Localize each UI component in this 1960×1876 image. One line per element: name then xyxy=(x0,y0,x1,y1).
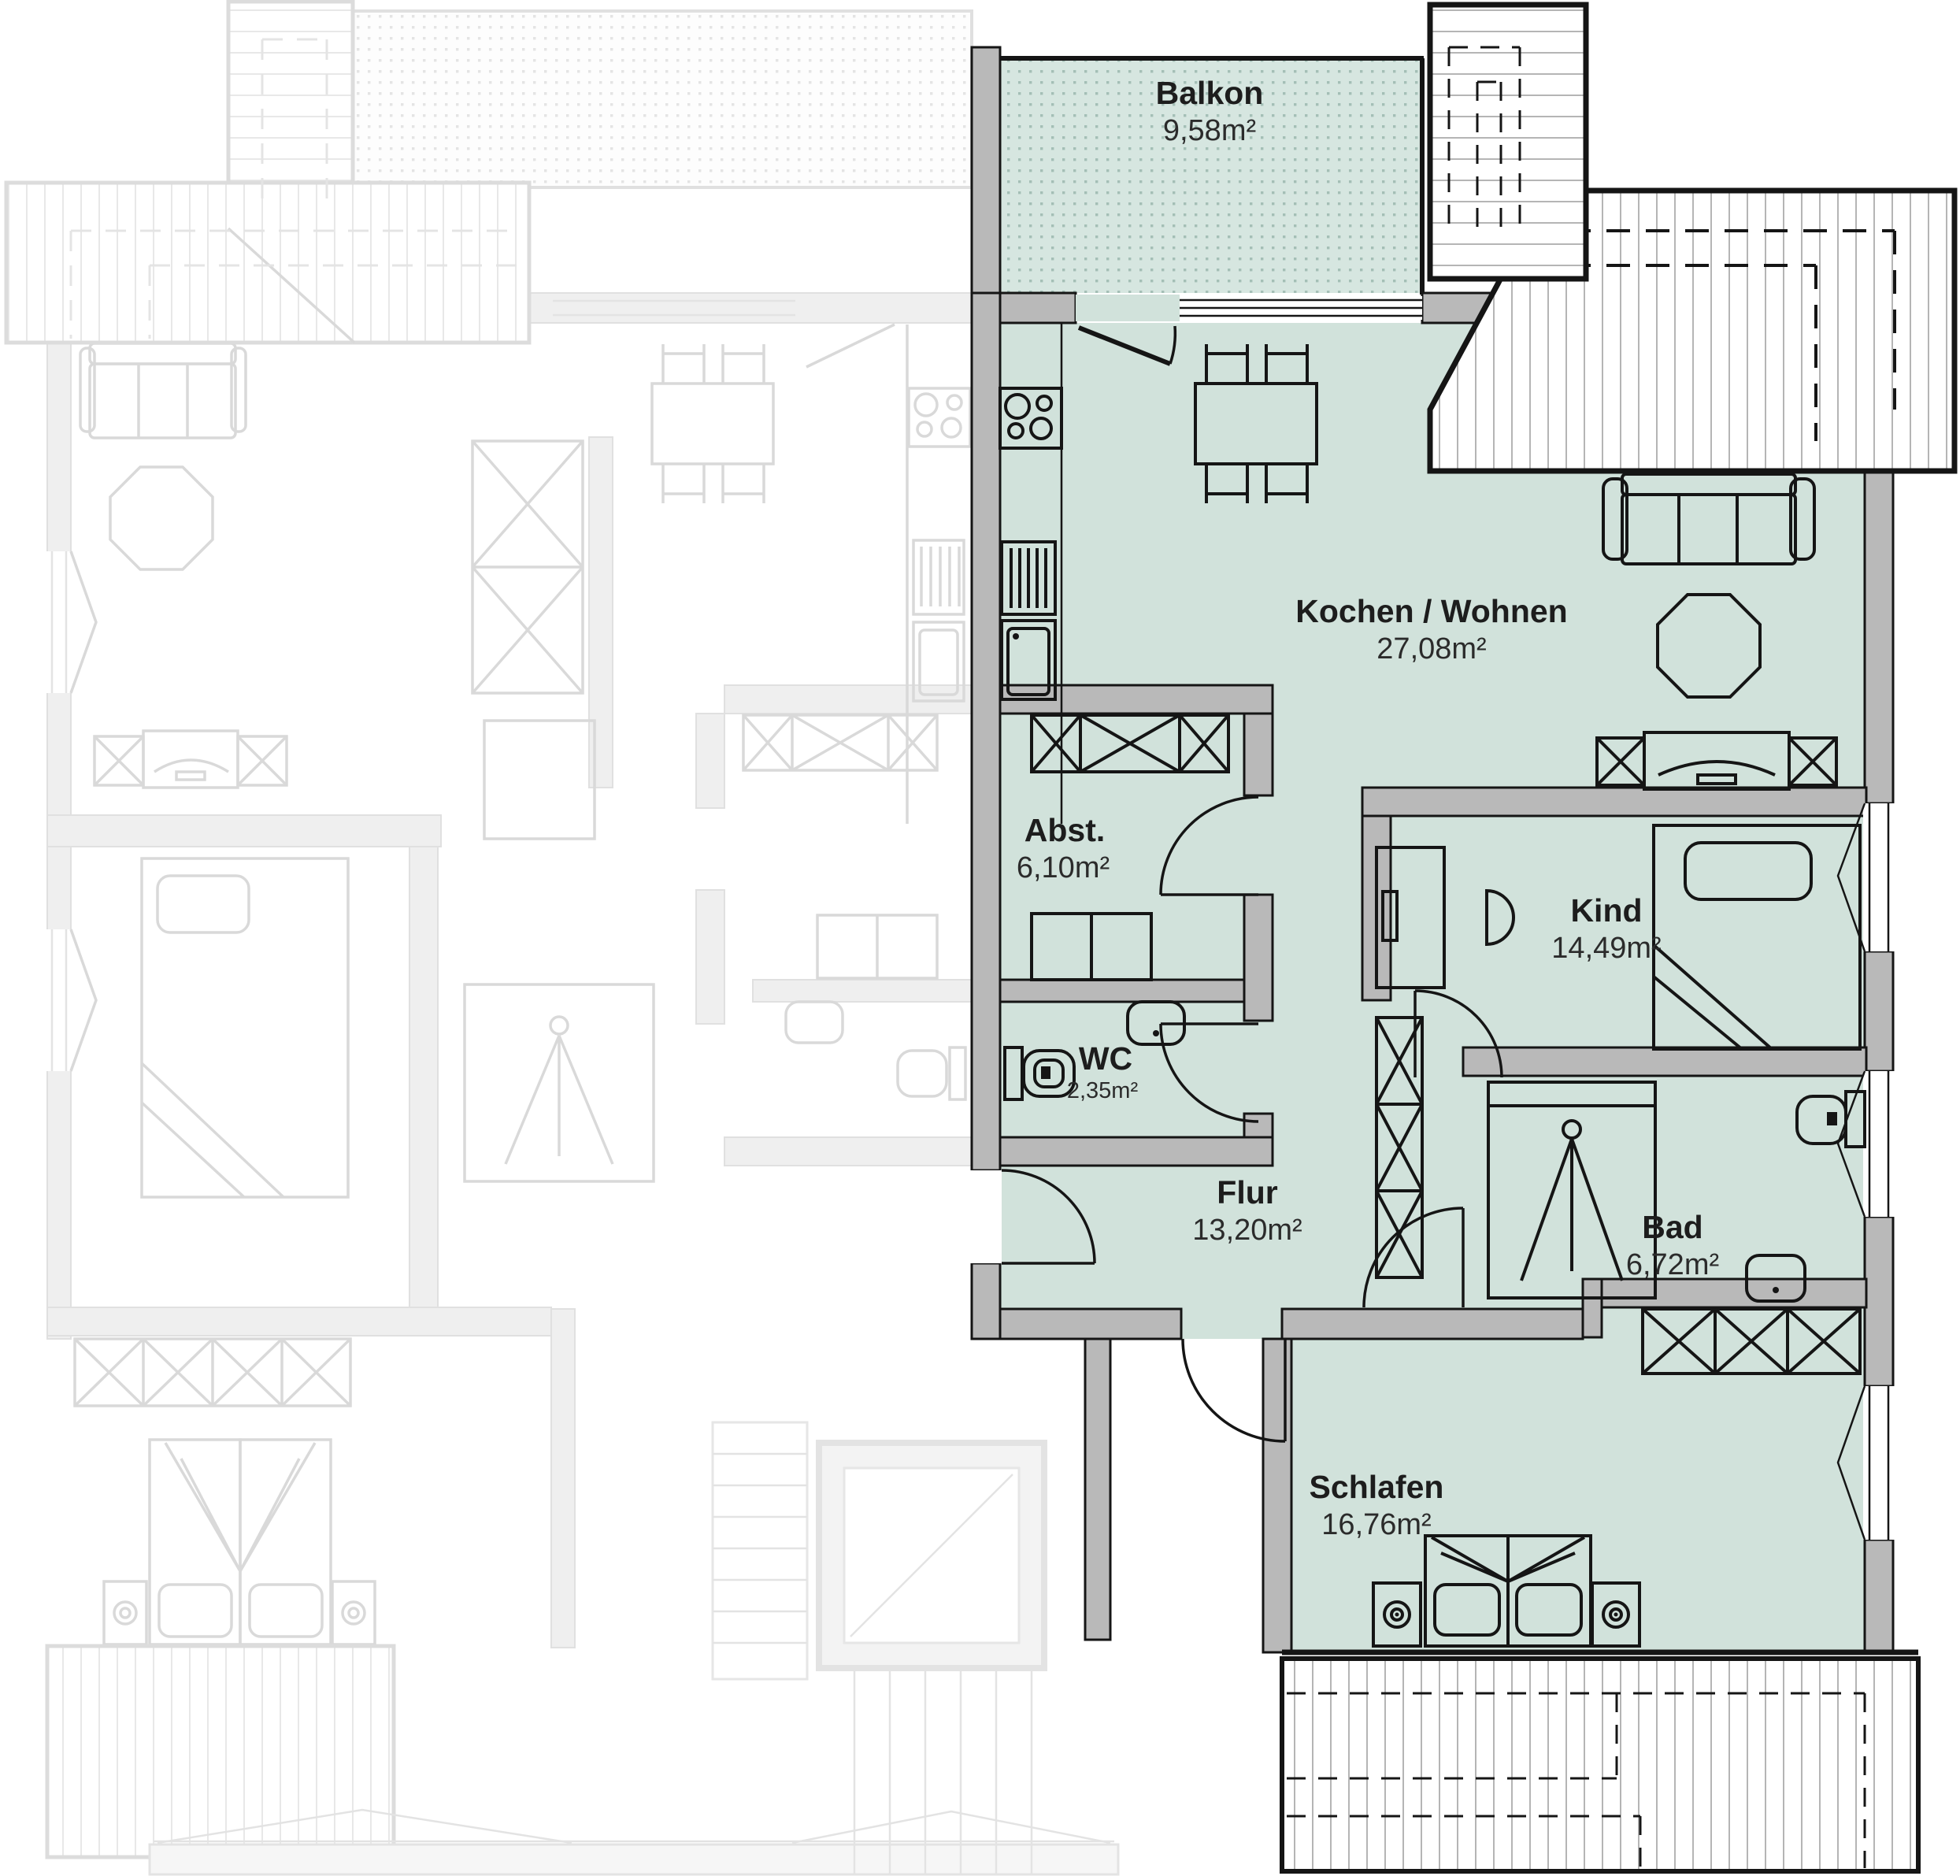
neighbor-sofa xyxy=(80,343,246,438)
neighbor-dormer-roof xyxy=(228,2,353,183)
label-kochen-wohnen-area: 27,08m² xyxy=(1376,632,1486,665)
floor-plan-svg: Balkon 9,58m² Kochen / Wohnen 27,08m² Ab… xyxy=(0,0,1960,1876)
neighbor-shower xyxy=(465,984,654,1181)
label-wc: WC xyxy=(1079,1040,1132,1077)
label-bad: Bad xyxy=(1642,1209,1702,1245)
neighbor-dining-set xyxy=(652,344,773,503)
label-schlafen: Schlafen xyxy=(1310,1469,1444,1505)
roof-overlay xyxy=(1430,5,1954,471)
stairwell-wall xyxy=(1085,1339,1110,1640)
neighbor-bedroom xyxy=(75,1339,375,1644)
label-flur-area: 13,20m² xyxy=(1192,1214,1302,1247)
party-wall xyxy=(972,47,1000,323)
neighbor-table-octagon xyxy=(110,467,213,569)
neighbor-balcony xyxy=(346,11,972,187)
neighbor-wc xyxy=(786,1002,965,1099)
dormer-roof xyxy=(1430,5,1586,279)
label-bad-area: 6,72m² xyxy=(1626,1248,1719,1281)
neighbor-tv-board xyxy=(94,731,287,788)
staircase-faded xyxy=(713,1422,1044,1874)
walkway xyxy=(150,1844,1118,1874)
label-balkon: Balkon xyxy=(1156,75,1264,111)
label-abst-area: 6,10m² xyxy=(1017,851,1110,884)
label-kind: Kind xyxy=(1570,892,1642,929)
floor-plan: Balkon 9,58m² Kochen / Wohnen 27,08m² Ab… xyxy=(0,0,1960,1876)
label-flur: Flur xyxy=(1217,1174,1277,1211)
label-wc-area: 2,35m² xyxy=(1067,1078,1139,1103)
label-abst: Abst. xyxy=(1024,812,1106,848)
neighbor-lower-balcony xyxy=(47,1646,394,1857)
label-schlafen-area: 16,76m² xyxy=(1321,1508,1431,1541)
neighbor-wardrobe xyxy=(472,441,583,693)
lower-roof-balcony xyxy=(1282,1659,1918,1871)
neighbor-bed xyxy=(142,858,348,1197)
label-balkon-area: 9,58m² xyxy=(1163,114,1256,147)
label-kind-area: 14,49m² xyxy=(1551,932,1661,965)
neighbor-small-table xyxy=(484,721,595,839)
window-balkon xyxy=(1180,296,1422,320)
label-kochen-wohnen: Kochen / Wohnen xyxy=(1295,593,1567,629)
